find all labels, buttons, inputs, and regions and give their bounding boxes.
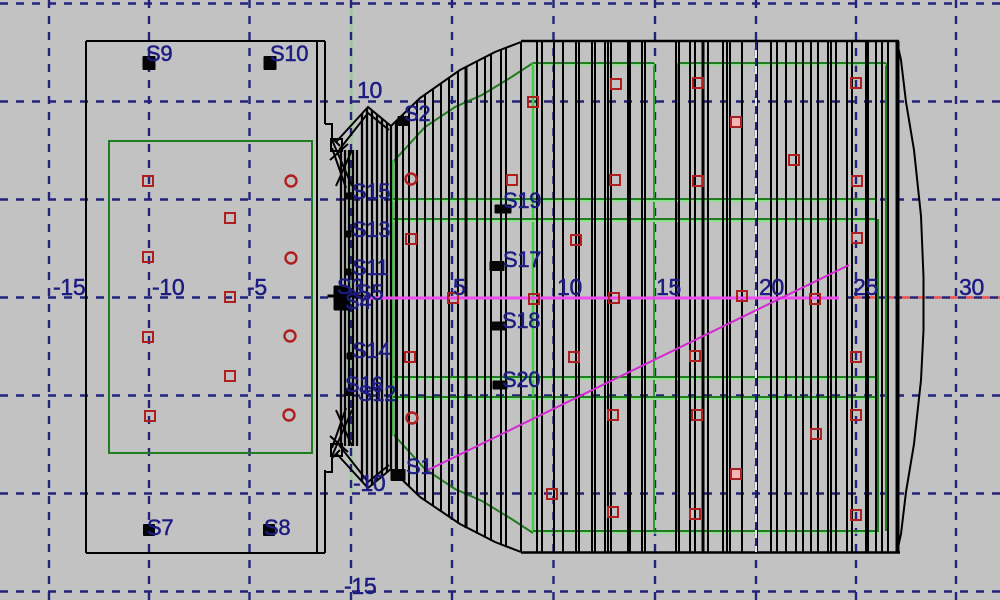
svg-text:S18: S18 (502, 308, 540, 333)
svg-text:S7: S7 (147, 515, 173, 540)
svg-text:S13: S13 (352, 217, 390, 242)
svg-text:S1: S1 (406, 454, 432, 479)
svg-text:-15: -15 (344, 573, 376, 599)
svg-text:S12: S12 (358, 381, 396, 406)
svg-text:20: 20 (759, 274, 784, 300)
svg-text:5: 5 (453, 274, 466, 300)
svg-text:-15: -15 (53, 274, 85, 300)
svg-text:-10: -10 (152, 274, 184, 300)
svg-text:10: 10 (357, 77, 382, 103)
svg-text:S15: S15 (352, 179, 390, 204)
svg-text:25: 25 (853, 274, 878, 300)
svg-text:-5: -5 (247, 274, 267, 300)
svg-text:S4: S4 (345, 289, 371, 314)
svg-text:S17: S17 (503, 247, 541, 272)
svg-text:30: 30 (959, 274, 984, 300)
svg-text:S19: S19 (503, 188, 541, 213)
svg-text:S9: S9 (146, 41, 172, 66)
svg-text:15: 15 (656, 274, 681, 300)
svg-text:S20: S20 (502, 367, 540, 392)
svg-text:S8: S8 (264, 515, 290, 540)
svg-text:S10: S10 (270, 41, 308, 66)
svg-text:S2: S2 (404, 101, 430, 126)
svg-text:10: 10 (557, 274, 582, 300)
svg-text:S14: S14 (352, 338, 390, 363)
svg-text:-10: -10 (353, 470, 385, 496)
